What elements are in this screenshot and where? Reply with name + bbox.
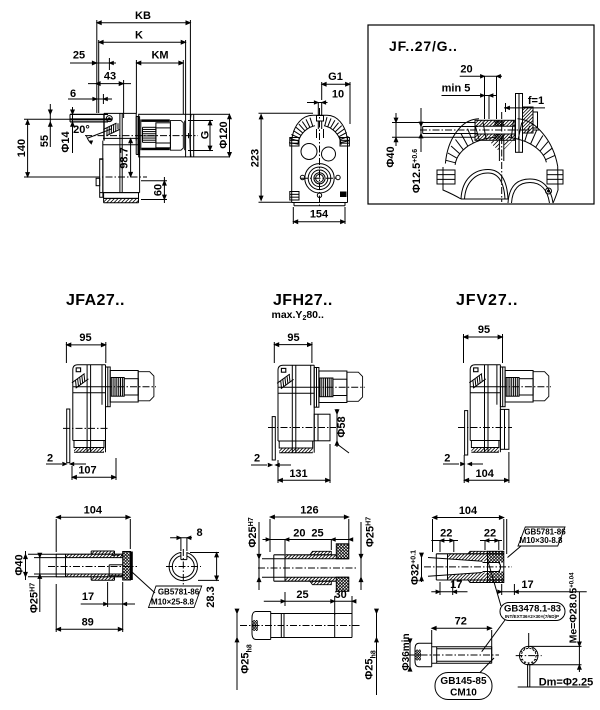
svg-text:17: 17 bbox=[521, 579, 533, 591]
svg-text:GB3478.1-83: GB3478.1-83 bbox=[504, 604, 561, 615]
svg-text:25: 25 bbox=[296, 589, 308, 601]
svg-text:M10×25-8.8: M10×25-8.8 bbox=[151, 598, 194, 607]
svg-text:60: 60 bbox=[153, 184, 165, 196]
svg-text:104: 104 bbox=[459, 505, 478, 517]
svg-text:GB5781-86: GB5781-86 bbox=[158, 588, 200, 597]
svg-text:98.7: 98.7 bbox=[119, 147, 131, 168]
svg-text:95: 95 bbox=[287, 332, 299, 344]
svg-text:M10×30-8.8: M10×30-8.8 bbox=[520, 536, 563, 545]
svg-text:JFH27..: JFH27.. bbox=[273, 292, 333, 309]
svg-text:22: 22 bbox=[440, 528, 452, 540]
svg-text:JF..27/G..: JF..27/G.. bbox=[389, 38, 458, 54]
svg-text:2: 2 bbox=[254, 453, 260, 465]
svg-text:K: K bbox=[135, 30, 143, 42]
svg-text:25: 25 bbox=[311, 527, 323, 539]
svg-text:JFV27..: JFV27.. bbox=[456, 292, 518, 309]
svg-text:Φ58: Φ58 bbox=[336, 416, 348, 437]
svg-text:154: 154 bbox=[310, 209, 329, 221]
svg-text:Φ36min: Φ36min bbox=[401, 633, 412, 670]
svg-text:95: 95 bbox=[79, 332, 91, 344]
svg-text:G1: G1 bbox=[328, 71, 343, 83]
svg-text:140: 140 bbox=[16, 139, 28, 157]
svg-text:max.Y280..: max.Y280.. bbox=[272, 309, 324, 322]
svg-text:107: 107 bbox=[78, 465, 96, 477]
svg-text:17: 17 bbox=[82, 591, 94, 603]
svg-text:25: 25 bbox=[73, 50, 85, 62]
svg-text:72: 72 bbox=[455, 616, 467, 628]
svg-text:f=1: f=1 bbox=[528, 95, 544, 107]
svg-text:126: 126 bbox=[300, 505, 318, 517]
svg-text:43: 43 bbox=[104, 71, 116, 83]
svg-text:28.3: 28.3 bbox=[205, 586, 217, 607]
svg-text:2: 2 bbox=[444, 453, 450, 465]
svg-text:95: 95 bbox=[478, 324, 490, 336]
svg-text:104: 104 bbox=[84, 505, 103, 517]
svg-text:104: 104 bbox=[476, 468, 495, 480]
svg-text:22: 22 bbox=[484, 528, 496, 540]
svg-text:30: 30 bbox=[334, 589, 346, 601]
svg-text:JFA27..: JFA27.. bbox=[66, 292, 125, 309]
svg-text:KB: KB bbox=[135, 10, 151, 22]
svg-text:Φ40: Φ40 bbox=[14, 554, 26, 575]
svg-text:Φ40: Φ40 bbox=[385, 146, 397, 167]
svg-text:GB145-85: GB145-85 bbox=[440, 676, 487, 687]
svg-text:G: G bbox=[200, 131, 212, 140]
svg-text:Φ14: Φ14 bbox=[60, 130, 72, 152]
svg-text:8: 8 bbox=[197, 527, 203, 539]
svg-text:INT/EXT36×2×30×(7/6D)P: INT/EXT36×2×30×(7/6D)P bbox=[505, 614, 559, 619]
svg-text:CM10: CM10 bbox=[450, 688, 477, 699]
svg-text:min 5: min 5 bbox=[442, 83, 471, 95]
svg-text:17: 17 bbox=[450, 579, 462, 591]
svg-text:6: 6 bbox=[70, 88, 76, 100]
svg-text:131: 131 bbox=[289, 468, 307, 480]
svg-text:20°: 20° bbox=[73, 124, 90, 136]
svg-text:20: 20 bbox=[293, 527, 305, 539]
svg-text:89: 89 bbox=[82, 617, 94, 629]
svg-text:Φ120: Φ120 bbox=[218, 121, 230, 148]
svg-text:KM: KM bbox=[151, 50, 168, 62]
svg-text:55: 55 bbox=[39, 135, 51, 147]
svg-text:10: 10 bbox=[332, 89, 344, 101]
svg-text:223: 223 bbox=[250, 149, 262, 167]
svg-text:2: 2 bbox=[47, 453, 53, 465]
svg-text:20: 20 bbox=[460, 64, 472, 76]
